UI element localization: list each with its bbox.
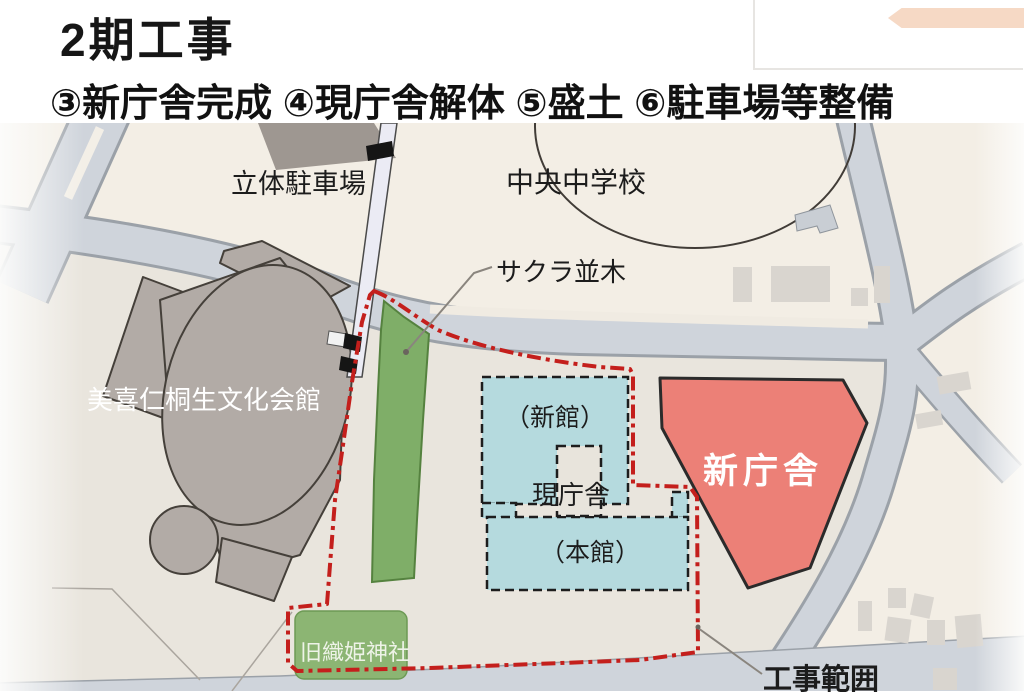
slide: 2期工事 ③新庁舎完成 ④現庁舎解体 ⑤盛土 ⑥駐車場等整備 [0, 0, 1024, 691]
callout-banner [888, 8, 1024, 28]
label-current-hall: 現庁舎 [532, 475, 610, 512]
label-parking-garage: 立体駐車場 [231, 162, 366, 201]
label-main-wing: （本館） [540, 533, 640, 569]
label-new-building: 新庁舎 [703, 443, 823, 494]
corner-building [795, 205, 838, 233]
label-cultural-hall: 美喜仁桐生文化会館 [87, 380, 321, 417]
label-cherry-tree-row: サクラ並木 [496, 252, 626, 289]
page-title: 2期工事 [60, 4, 236, 70]
label-new-wing: （新館） [505, 398, 605, 434]
page-subtitle: ③新庁舎完成 ④現庁舎解体 ⑤盛土 ⑥駐車場等整備 [50, 72, 894, 127]
label-school: 中央中学校 [506, 161, 646, 201]
label-construction-area: 工事範囲 [763, 656, 879, 698]
label-old-shrine: 旧織姫神社 [300, 635, 410, 667]
